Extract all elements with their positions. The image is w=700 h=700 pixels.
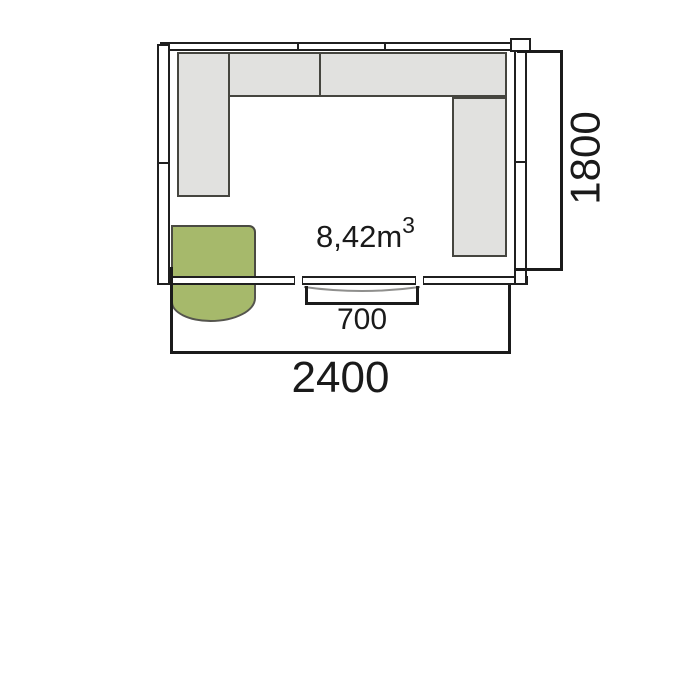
door-frame-post-left — [294, 276, 303, 285]
door-frame-post-right — [415, 276, 424, 285]
width-extension-right — [508, 285, 511, 353]
door-width-label: 700 — [303, 305, 421, 335]
overall-depth-label-box: 1800 — [563, 55, 609, 260]
door-threshold-arc — [303, 285, 421, 297]
shelf-left — [177, 52, 230, 197]
wall-left — [157, 44, 170, 285]
volume-value: 8,42m — [316, 219, 402, 254]
overall-depth-label: 1800 — [565, 111, 607, 204]
shelf-top-left — [228, 52, 321, 97]
width-extension-left — [170, 267, 173, 353]
shelf-top-right — [319, 52, 507, 97]
wall-right — [514, 49, 527, 285]
volume-label: 8,42m3 — [316, 219, 415, 255]
overall-width-label: 2400 — [170, 356, 511, 400]
depth-tick-top — [517, 50, 563, 53]
wall-top — [160, 42, 512, 51]
wall-joint-right — [514, 161, 527, 163]
door-leaf-inner — [171, 225, 256, 278]
volume-exponent: 3 — [402, 212, 415, 238]
wall-joint-left — [157, 162, 170, 164]
shelf-right — [452, 97, 507, 257]
depth-tick-bottom — [514, 268, 563, 271]
wall-bottom — [157, 276, 528, 285]
wall-joint-top-1 — [297, 42, 299, 51]
floor-plan-canvas: 700 2400 1800 8,42m3 — [0, 0, 700, 700]
door-swing — [171, 280, 256, 322]
wall-joint-top-2 — [384, 42, 386, 51]
